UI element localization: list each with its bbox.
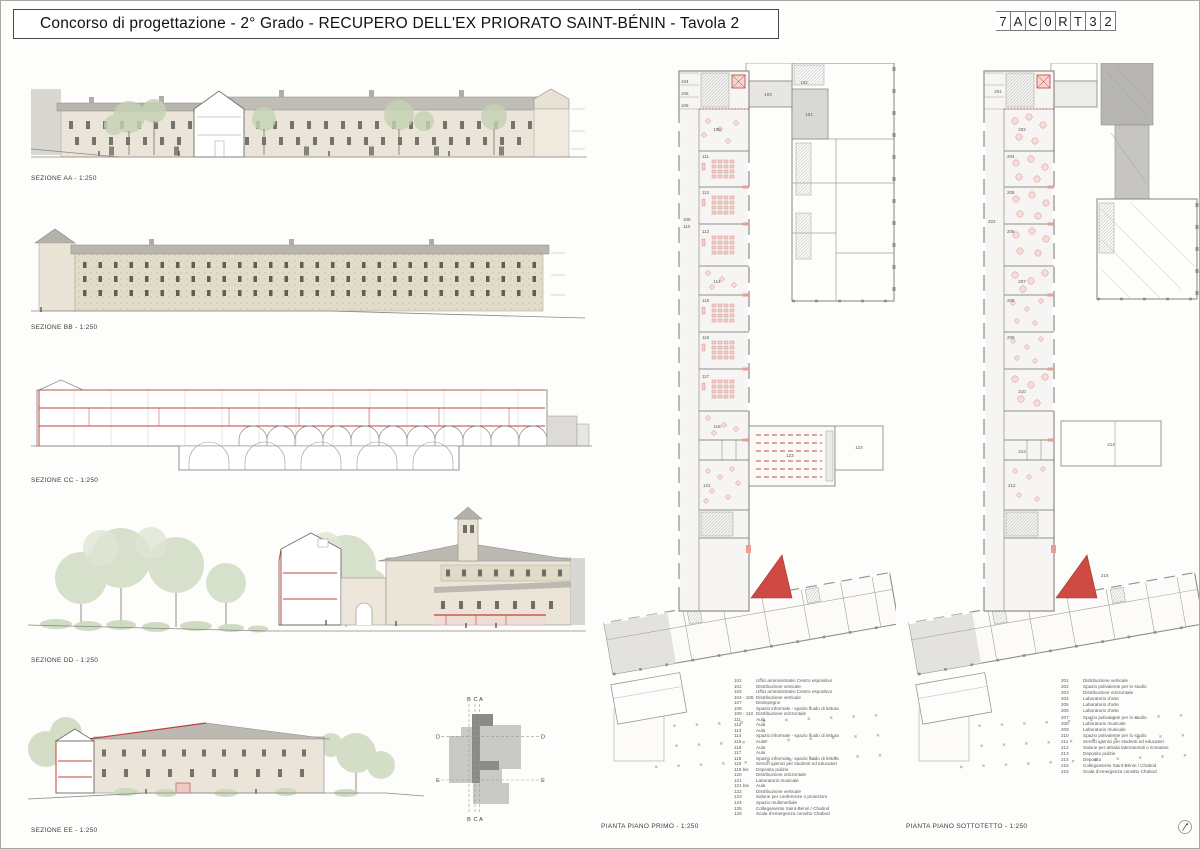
room-number: 124 (855, 445, 863, 450)
room-number: 106 (681, 103, 689, 108)
key-plan-letter: E (436, 778, 440, 784)
pianta-piano-primo-label: PIANTA PIANO PRIMO - 1:250 (601, 823, 699, 830)
room-number: 201 (994, 89, 1002, 94)
legend-row: 216 Scala d'emergenza convitto Chabod (1061, 769, 1200, 775)
main-wing (984, 71, 1056, 611)
room-number: 213 (1018, 449, 1026, 454)
priorato-attic (1097, 199, 1197, 299)
room-number: 215 (1101, 573, 1109, 578)
code-cell: 2 (1101, 11, 1116, 31)
key-plan-letter: C (474, 817, 478, 823)
room-number: 110 (683, 224, 691, 229)
room-number: 207 (1018, 279, 1026, 284)
sheet-title: Concorso di progettazione - 2° Grado - R… (40, 15, 739, 33)
room-number: 117 (702, 374, 710, 379)
key-plan: B C A B C A D D E E (431, 687, 553, 825)
section-cut-dd (279, 533, 341, 625)
priorato-building (792, 63, 894, 301)
legend-label: Scala d'emergenza convitto Chabod (756, 811, 830, 817)
sezione-ee-label: SEZIONE EE - 1:250 (31, 827, 97, 834)
room-number: 101 (805, 112, 813, 117)
room-number: 123 (786, 453, 794, 458)
room-number: 210 (1018, 389, 1026, 394)
room-number: 208 (1007, 298, 1015, 303)
room-number: 112 (702, 190, 710, 195)
room-number: 116 (702, 335, 710, 340)
room-number: 118 (713, 424, 721, 429)
sezione-ee-drawing (26, 689, 426, 821)
sezione-bb-label: SEZIONE BB - 1:250 (31, 324, 97, 331)
key-plan-letter: B (467, 697, 471, 703)
room-number: 205 (1007, 190, 1015, 195)
room-number: 212 (1008, 483, 1016, 488)
emergency-stair-red (1056, 555, 1097, 598)
sezione-aa-drawing (29, 69, 589, 171)
sezione-dd-label: SEZIONE DD - 1:250 (31, 657, 98, 664)
legend-code: 126 (734, 811, 756, 817)
room-number: 105 (681, 91, 689, 96)
key-plan-letter: A (479, 817, 483, 823)
room-number: 202 (1018, 127, 1026, 132)
legend-code: 216 (1061, 769, 1083, 775)
key-plan-letter: D (541, 735, 545, 741)
key-plan-letter: B (467, 817, 471, 823)
legend-label: Scala d'emergenza convitto Chabod (1083, 769, 1157, 775)
room-number: 214 (1107, 442, 1115, 447)
code-cell: 0 (1041, 11, 1056, 31)
section-cut-ee (56, 729, 94, 793)
legend-sottotetto: 201 Distribuzione verticale 202 Spazio p… (1061, 678, 1200, 776)
room-number: 113 (702, 229, 710, 234)
room-number: 111 (702, 154, 709, 159)
room-number: 115 (702, 298, 710, 303)
code-cell: T (1071, 11, 1086, 31)
emergency-stair-red (751, 555, 792, 598)
code-cell: 3 (1086, 11, 1101, 31)
code-cell: 7 (996, 11, 1011, 31)
pianta-piano-sottotetto-label: PIANTA PIANO SOTTOTETTO - 1:250 (906, 823, 1027, 830)
sezione-aa-label: SEZIONE AA - 1:250 (31, 175, 97, 182)
code-cell: A (1011, 11, 1026, 31)
competition-board: Concorso di progettazione - 2° Grado - R… (0, 0, 1200, 849)
legend-label: Spazio informale - spazio fluido di lett… (756, 733, 839, 739)
sezione-dd-drawing (26, 503, 589, 653)
room-number: 102 (800, 80, 808, 85)
sezione-bb-drawing (29, 223, 589, 321)
key-plan-letter: C (474, 697, 478, 703)
key-plan-letter: A (479, 697, 483, 703)
room-number: 203 (988, 219, 996, 224)
room-number: 104 (681, 79, 689, 84)
title-bar: Concorso di progettazione - 2° Grado - R… (13, 9, 779, 39)
legend-row: 126 Scala d'emergenza convitto Chabod (734, 811, 884, 817)
key-plan-letter: E (541, 778, 545, 784)
code-cell: R (1056, 11, 1071, 31)
neighbor-building (1101, 63, 1153, 199)
legend-piano-primo: 101 Uffici amministrativi Centro esposit… (734, 678, 884, 817)
north-arrow-icon (1177, 819, 1193, 835)
room-number: 103 (764, 92, 772, 97)
room-number: 206 (1007, 229, 1015, 234)
room-number: 209 (1007, 335, 1015, 340)
key-plan-letter: D (436, 735, 440, 741)
sezione-cc-drawing (29, 376, 592, 474)
room-number: 108 (713, 127, 721, 132)
sezione-cc-label: SEZIONE CC - 1:250 (31, 477, 98, 484)
room-number: 204 (1007, 154, 1015, 159)
code-cell: C (1026, 11, 1041, 31)
code-box: 7AC0RT32 (996, 11, 1116, 31)
room-number: 109 (683, 217, 691, 222)
room-number: 114 (713, 279, 721, 284)
room-number: 121 (703, 483, 711, 488)
